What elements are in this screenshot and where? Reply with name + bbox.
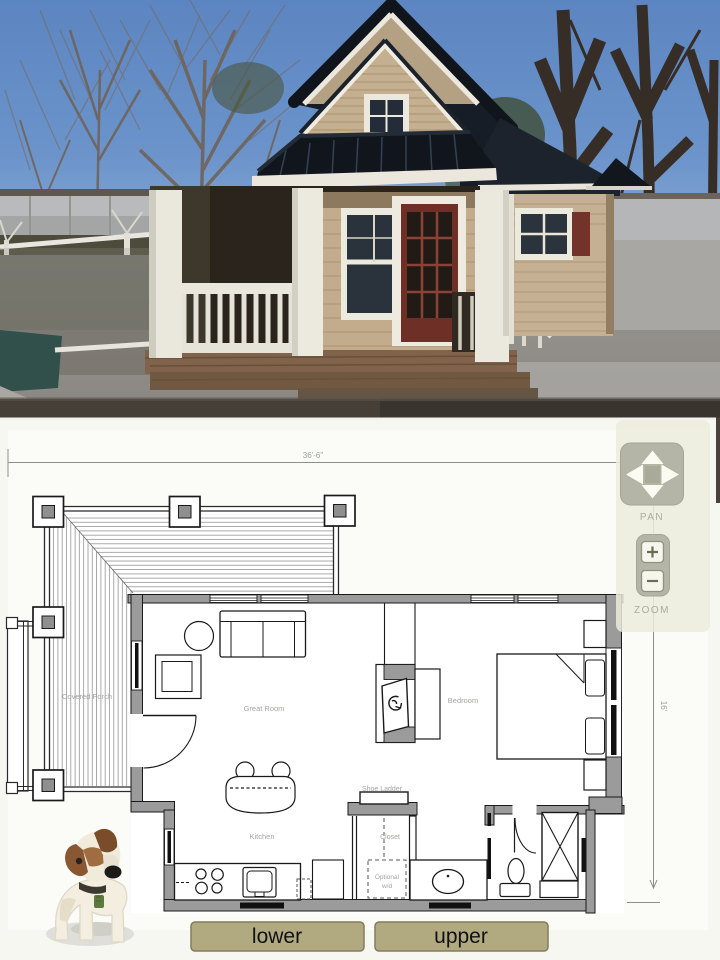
svg-text:Kitchen: Kitchen: [249, 832, 274, 841]
svg-text:upper: upper: [434, 925, 488, 948]
svg-text:Bedroom: Bedroom: [448, 696, 478, 705]
svg-text:Closet: Closet: [380, 834, 400, 841]
svg-text:lower: lower: [252, 925, 302, 948]
svg-text:16': 16': [659, 701, 668, 712]
svg-text:ZOOM: ZOOM: [634, 605, 670, 616]
svg-text:Covered Porch: Covered Porch: [62, 692, 112, 701]
svg-text:Optional: Optional: [375, 874, 400, 881]
svg-text:36'-6": 36'-6": [303, 451, 324, 460]
svg-text:Shoe Ladder: Shoe Ladder: [362, 786, 403, 793]
svg-text:PAN: PAN: [640, 512, 664, 523]
svg-text:Great Room: Great Room: [244, 704, 285, 713]
svg-text:w/d: w/d: [381, 883, 393, 890]
